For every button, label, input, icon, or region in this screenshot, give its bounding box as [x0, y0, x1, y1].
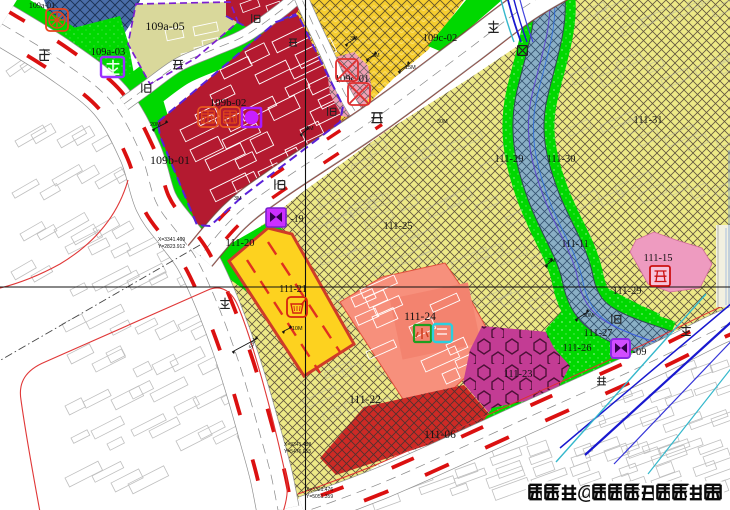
svg-text:109a-05: 109a-05 — [145, 19, 184, 33]
svg-text:20M: 20M — [150, 122, 161, 128]
svg-text:2M: 2M — [548, 258, 556, 264]
svg-text:111-31: 111-31 — [634, 115, 663, 126]
svg-text:15M: 15M — [405, 65, 416, 71]
svg-text:111-11: 111-11 — [561, 239, 588, 250]
svg-text:X=3341.469: X=3341.469 — [158, 237, 185, 243]
svg-text:3M: 3M — [234, 196, 242, 202]
svg-text:3M: 3M — [372, 53, 380, 59]
svg-text:X=3341.488: X=3341.488 — [284, 442, 311, 448]
svg-text:111-30: 111-30 — [547, 154, 576, 165]
svg-text:111-23: 111-23 — [504, 369, 533, 380]
svg-text:111-15: 111-15 — [644, 253, 673, 264]
svg-text:30M: 30M — [583, 313, 594, 319]
svg-text:111-29: 111-29 — [613, 286, 642, 297]
svg-text:-19: -19 — [290, 214, 303, 225]
svg-text:Y=5476.055: Y=5476.055 — [284, 449, 311, 455]
svg-text:-10M: -10M — [290, 326, 303, 332]
svg-text:111-21: 111-21 — [279, 284, 307, 295]
svg-text:109b-01: 109b-01 — [150, 153, 190, 167]
svg-text:111-25: 111-25 — [384, 221, 413, 232]
svg-text:Y=2823.912: Y=2823.912 — [158, 244, 185, 250]
svg-text:111-20: 111-20 — [226, 238, 255, 249]
svg-text:Y=5051.359: Y=5051.359 — [306, 494, 333, 500]
svg-text:111-29: 111-29 — [495, 154, 524, 165]
svg-text:109c-02: 109c-02 — [423, 33, 457, 44]
svg-text:3M: 3M — [350, 36, 358, 42]
svg-text:3M: 3M — [306, 126, 314, 132]
svg-text:111-22: 111-22 — [349, 394, 381, 406]
svg-text:111-27: 111-27 — [584, 328, 613, 339]
svg-text:30M: 30M — [437, 119, 448, 125]
svg-text:111-06: 111-06 — [424, 429, 456, 441]
svg-text:111-24: 111-24 — [404, 311, 436, 323]
svg-text:X=3321.476: X=3321.476 — [306, 487, 333, 493]
svg-text:111-26: 111-26 — [563, 343, 592, 354]
